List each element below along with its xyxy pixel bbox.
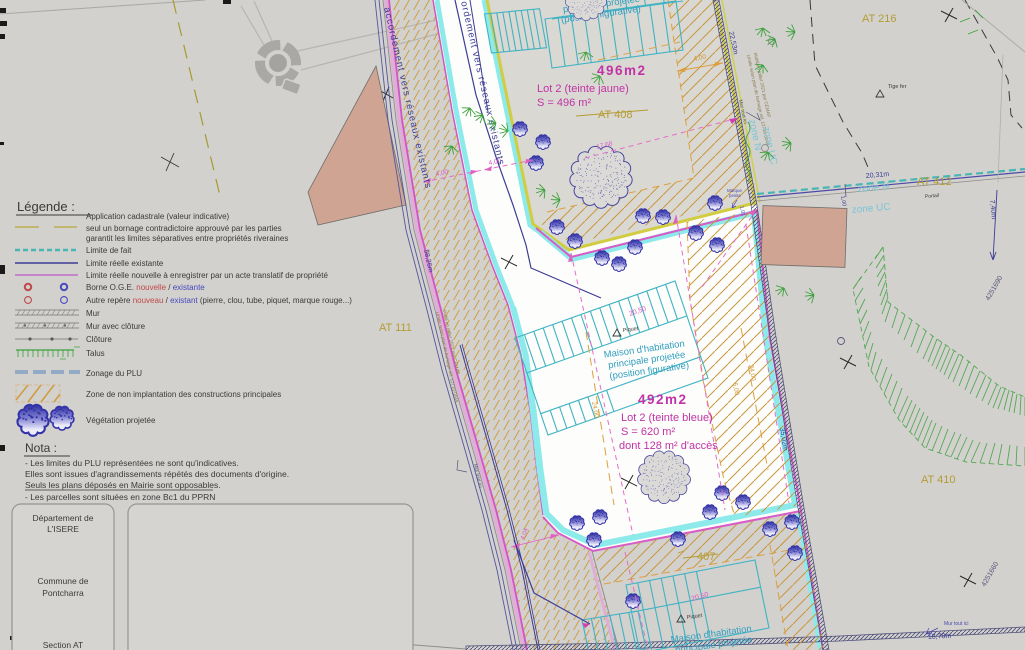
svg-text:Limite réelle nouvelle à enreg: Limite réelle nouvelle à enregistrer par… [86,271,328,280]
svg-text:Mur: Mur [86,309,100,318]
svg-text:Portail: Portail [925,193,940,200]
svg-text:Lot 2 (teinte bleue): Lot 2 (teinte bleue) [621,412,713,424]
svg-text:496m2: 496m2 [597,63,647,78]
svg-text:garantit les limites séparativ: garantit les limites séparatives entre p… [86,234,288,243]
svg-text:AT 412: AT 412 [917,176,951,188]
svg-text:Tige fer: Tige fer [888,84,907,90]
svg-text:Mur tout ici: Mur tout ici [944,621,968,627]
svg-text:seul un bornage contradictoire: seul un bornage contradictoire approuvé … [86,224,282,233]
svg-text:Légende :: Légende : [17,199,75,214]
svg-text:AT 408: AT 408 [598,109,632,121]
svg-text:Limite réelle existante: Limite réelle existante [86,259,164,268]
svg-text:- Les limites du PLU représent: - Les limites du PLU représentées ne son… [25,458,239,468]
svg-text:492m2: 492m2 [638,392,688,407]
svg-text:Mur avec clôture: Mur avec clôture [86,322,146,331]
svg-text:AT 111: AT 111 [379,322,412,334]
svg-text:- Les parcelles sont situées e: - Les parcelles sont situées en zone Bc1… [25,492,215,502]
svg-text:dont 128 m² d'accès: dont 128 m² d'accès [619,440,718,452]
svg-text:18,78m: 18,78m [928,633,952,641]
svg-text:Borne O.G.E. nouvelle / exista: Borne O.G.E. nouvelle / existante [86,283,205,292]
svg-text:Zone de non implantation des c: Zone de non implantation des constructio… [86,390,281,399]
svg-text:S = 496 m²: S = 496 m² [537,97,591,109]
svg-text:Application cadastrale (valeur: Application cadastrale (valeur indicativ… [86,212,230,221]
svg-text:Pontcharra: Pontcharra [42,588,84,598]
svg-text:L'ISERE: L'ISERE [47,524,79,534]
svg-text:Talus: Talus [86,349,105,358]
svg-text:Département de: Département de [33,513,94,523]
svg-text:AT 216: AT 216 [862,13,896,25]
svg-text:Végétation projetée: Végétation projetée [86,416,156,425]
svg-text:407: 407 [697,551,715,563]
svg-text:Limite de fait: Limite de fait [86,246,132,255]
svg-text:Commune de: Commune de [37,576,88,586]
svg-text:Section AT: Section AT [43,640,83,650]
svg-text:Autre repère nouveau / existan: Autre repère nouveau / existant (pierre,… [86,296,352,305]
svg-text:Elles sont issues d'agrandisse: Elles sont issues d'agrandissements répé… [25,469,289,479]
svg-text:peinte: peinte [729,193,742,198]
svg-text:S = 620 m²: S = 620 m² [621,426,675,438]
svg-text:Lot 2 (teinte jaune): Lot 2 (teinte jaune) [537,83,629,95]
svg-text:Zonage du PLU: Zonage du PLU [86,369,142,378]
svg-text:AT 410: AT 410 [921,474,955,486]
svg-text:Nota :: Nota : [25,441,57,455]
svg-text:Seuls les plans déposés en Mai: Seuls les plans déposés en Mairie sont o… [25,480,221,490]
svg-text:Clôture: Clôture [86,335,112,344]
